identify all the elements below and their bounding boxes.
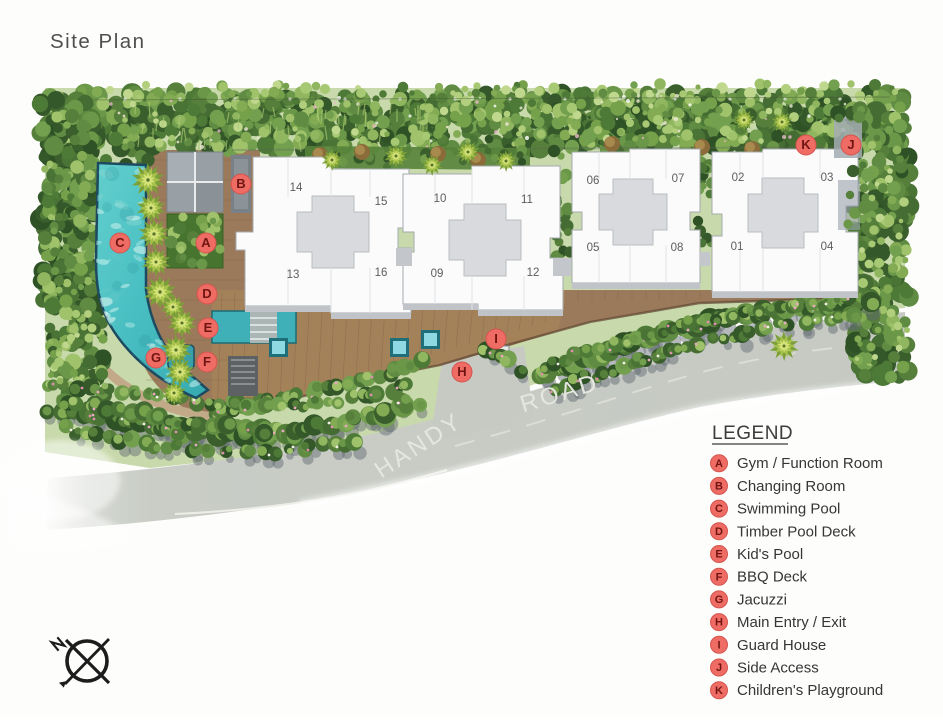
svg-text:12: 12 xyxy=(527,267,540,279)
svg-text:Timber Pool Deck: Timber Pool Deck xyxy=(737,523,856,540)
svg-text:A: A xyxy=(201,235,211,250)
svg-text:01: 01 xyxy=(731,241,744,253)
svg-text:C: C xyxy=(115,235,125,250)
svg-text:A: A xyxy=(715,458,723,470)
svg-text:LEGEND: LEGEND xyxy=(712,423,793,444)
svg-text:H: H xyxy=(457,364,466,379)
svg-text:Swimming Pool: Swimming Pool xyxy=(737,501,840,518)
svg-text:Gym / Function Room: Gym / Function Room xyxy=(737,455,883,472)
svg-text:10: 10 xyxy=(434,193,447,205)
svg-text:BBQ Deck: BBQ Deck xyxy=(737,569,808,586)
svg-text:14: 14 xyxy=(290,182,303,194)
svg-text:K: K xyxy=(801,137,811,152)
svg-text:F: F xyxy=(716,571,723,583)
svg-text:16: 16 xyxy=(375,267,388,279)
svg-text:I: I xyxy=(494,331,498,346)
svg-text:K: K xyxy=(715,685,723,697)
svg-text:Main Entry / Exit: Main Entry / Exit xyxy=(737,614,847,631)
svg-text:D: D xyxy=(715,526,723,538)
svg-text:G: G xyxy=(151,350,161,365)
svg-text:07: 07 xyxy=(672,173,685,185)
svg-text:15: 15 xyxy=(375,196,388,208)
svg-text:Site Plan: Site Plan xyxy=(50,30,146,53)
svg-text:04: 04 xyxy=(821,241,834,253)
svg-text:E: E xyxy=(204,320,213,335)
svg-text:Children's Playground: Children's Playground xyxy=(737,682,883,699)
svg-text:J: J xyxy=(716,662,722,674)
svg-text:05: 05 xyxy=(587,242,600,254)
svg-text:E: E xyxy=(715,549,722,561)
svg-text:H: H xyxy=(715,617,723,629)
svg-text:C: C xyxy=(715,503,723,515)
svg-text:03: 03 xyxy=(821,172,834,184)
svg-text:G: G xyxy=(715,594,724,606)
svg-text:B: B xyxy=(715,481,723,493)
svg-text:13: 13 xyxy=(287,269,300,281)
svg-text:J: J xyxy=(847,137,854,152)
svg-text:09: 09 xyxy=(431,268,444,280)
svg-text:11: 11 xyxy=(521,194,533,206)
svg-text:Changing Room: Changing Room xyxy=(737,478,845,495)
svg-text:I: I xyxy=(717,639,720,651)
svg-text:Side Access: Side Access xyxy=(737,660,819,677)
svg-text:02: 02 xyxy=(732,172,745,184)
svg-text:F: F xyxy=(203,354,211,369)
svg-text:Kid's Pool: Kid's Pool xyxy=(737,546,803,563)
svg-text:B: B xyxy=(236,176,245,191)
svg-text:Guard House: Guard House xyxy=(737,637,826,654)
svg-text:D: D xyxy=(202,286,211,301)
svg-text:Jacuzzi: Jacuzzi xyxy=(737,591,787,608)
svg-text:08: 08 xyxy=(671,242,684,254)
svg-text:06: 06 xyxy=(587,175,600,187)
